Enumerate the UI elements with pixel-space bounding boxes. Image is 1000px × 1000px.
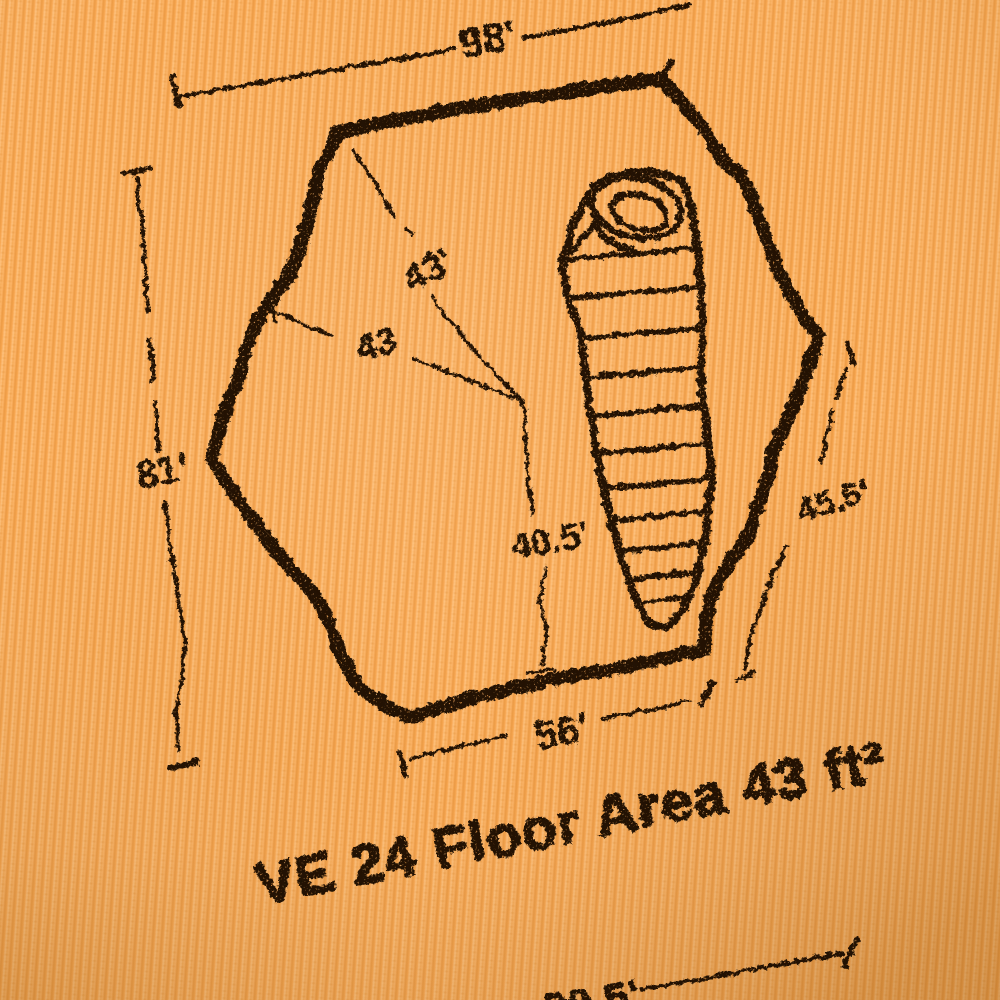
svg-text:81': 81'	[131, 445, 190, 496]
